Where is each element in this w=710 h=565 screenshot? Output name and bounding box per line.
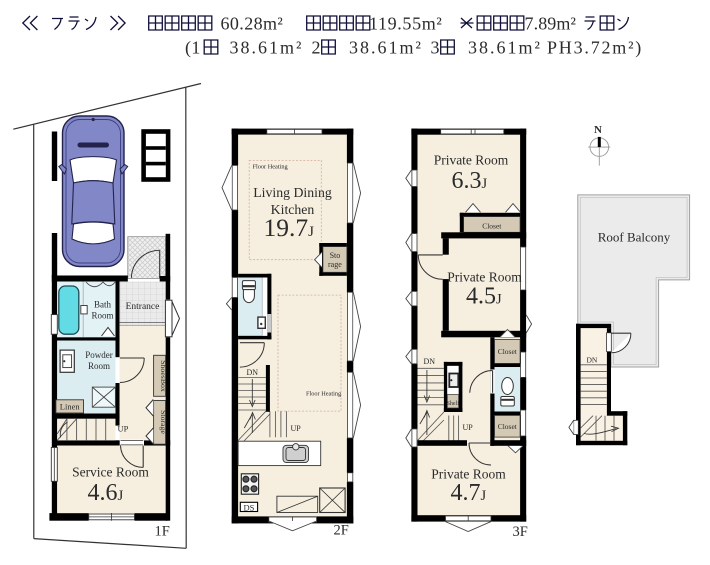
svg-text:Private Room: Private Room [434,153,509,168]
svg-text:Powder: Powder [85,350,113,360]
svg-text:3F: 3F [513,524,528,540]
svg-text:38.61m²: 38.61m² [349,38,423,58]
svg-text:Floor Heating: Floor Heating [253,164,289,171]
svg-text:Entrance: Entrance [126,302,160,312]
svg-text:38.61m²: 38.61m² [468,38,542,58]
svg-text:ShoesBox: ShoesBox [159,360,168,392]
svg-text:Storage: Storage [159,410,168,434]
svg-text:UP: UP [463,423,474,432]
svg-text:DS: DS [243,502,254,512]
svg-text:Room: Room [91,311,113,321]
svg-text:Shelf: Shelf [447,400,460,407]
svg-text:2F: 2F [334,523,349,539]
svg-text:Linen: Linen [60,402,81,412]
svg-text:Closet: Closet [498,422,518,431]
svg-text:UP: UP [118,424,129,434]
svg-text:rage: rage [328,260,342,269]
svg-text:DN: DN [424,357,436,366]
svg-text:38.61m²: 38.61m² [230,38,304,58]
svg-text:DN: DN [587,355,598,364]
svg-text:Sto: Sto [330,251,341,260]
svg-text:Living Dining: Living Dining [253,185,332,200]
svg-text:1F: 1F [155,524,170,540]
svg-text:60.28m²: 60.28m² [221,14,284,34]
svg-text:Bath: Bath [94,300,111,310]
svg-text:19.7J: 19.7J [264,213,315,242]
svg-text:Closet: Closet [498,347,518,356]
svg-text:Closet: Closet [482,221,502,230]
svg-text:(1: (1 [185,38,201,59]
svg-text:2: 2 [312,38,321,58]
svg-text:UP: UP [291,424,302,433]
svg-text:3: 3 [431,38,440,58]
svg-text:119.55m²: 119.55m² [369,14,442,34]
svg-text:N: N [594,124,602,136]
svg-text:DN: DN [247,368,259,377]
svg-text:Floor Heating: Floor Heating [306,391,342,398]
svg-text:Private Room: Private Room [447,270,522,285]
svg-text:PH3.72m²): PH3.72m²) [547,38,643,59]
svg-text:Roof Balcony: Roof Balcony [598,230,671,245]
svg-text:7.89m²: 7.89m² [525,14,577,34]
svg-text:Service Room: Service Room [72,465,149,480]
svg-text:Room: Room [88,361,110,371]
